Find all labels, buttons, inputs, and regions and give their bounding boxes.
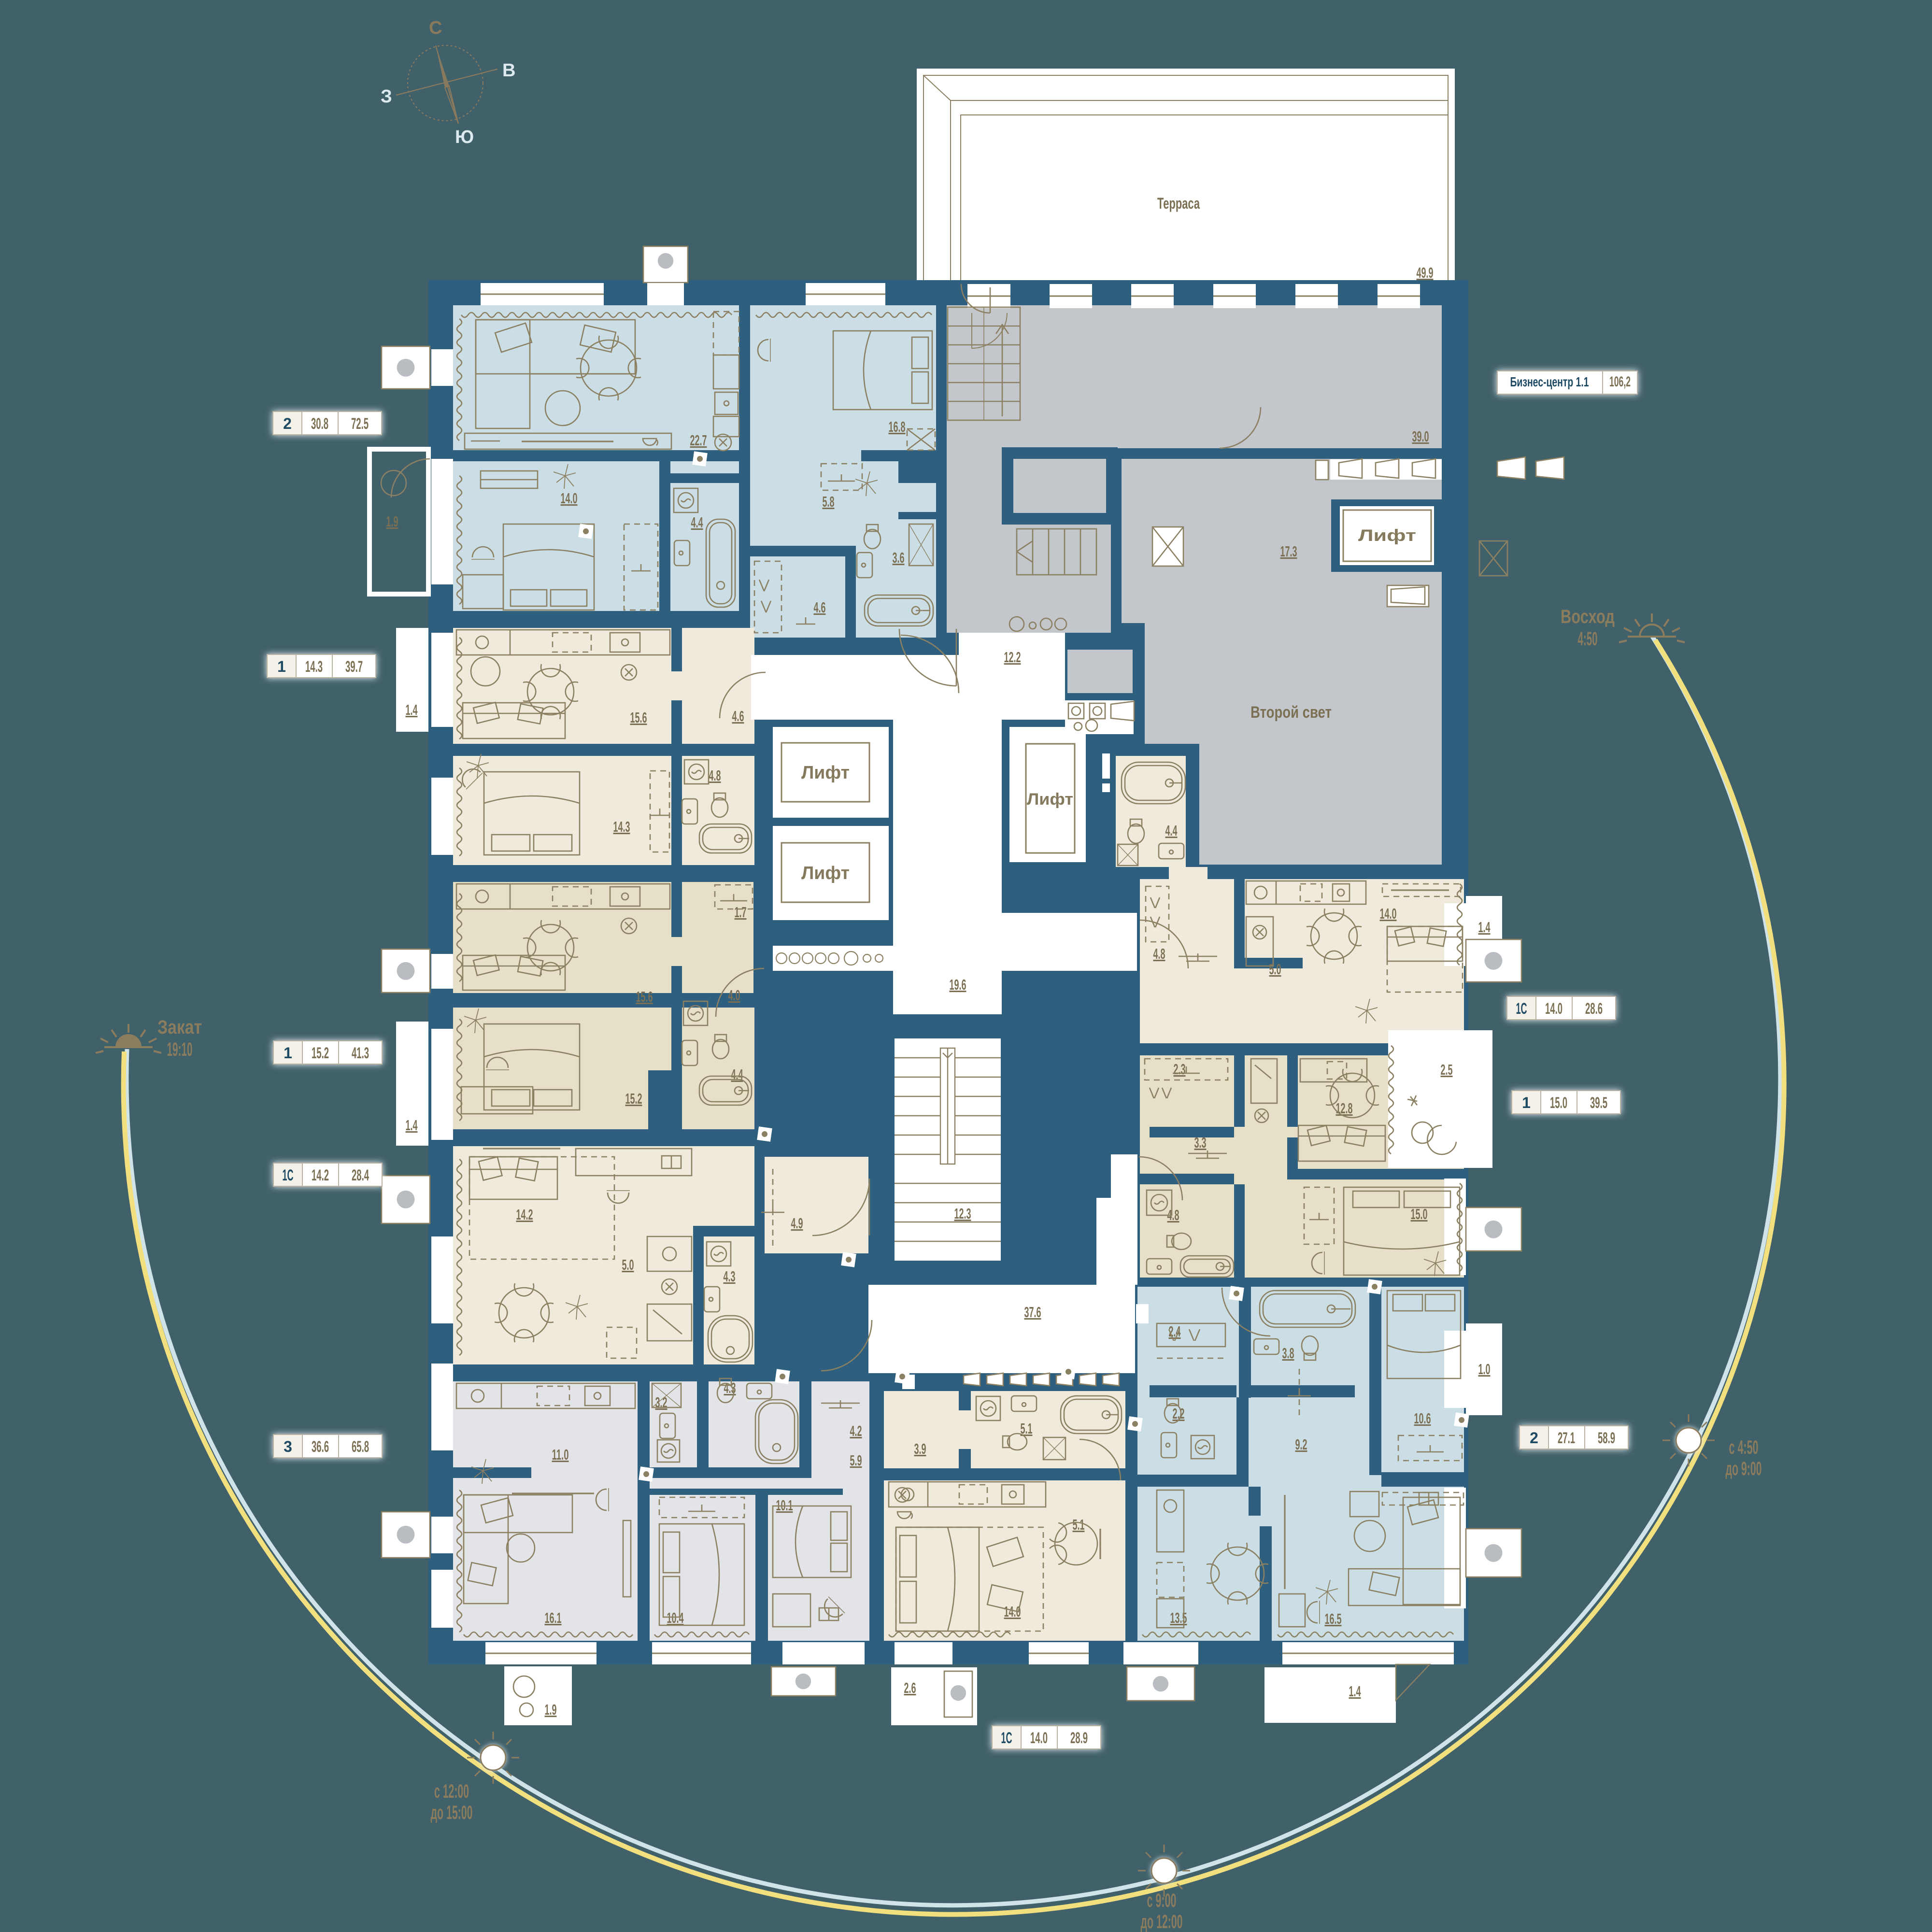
svg-text:1: 1 [284, 1044, 292, 1062]
svg-text:5.1: 5.1 [1073, 1516, 1085, 1533]
svg-text:16.8: 16.8 [889, 418, 906, 435]
svg-text:15.2: 15.2 [312, 1044, 329, 1062]
svg-text:с 4:50: с 4:50 [1729, 1437, 1759, 1458]
svg-text:1.7: 1.7 [735, 904, 747, 921]
svg-text:В: В [502, 60, 515, 81]
svg-text:16.5: 16.5 [1325, 1610, 1342, 1627]
svg-text:3.6: 3.6 [893, 549, 905, 566]
svg-text:14.0: 14.0 [1380, 905, 1397, 922]
svg-text:Лифт: Лифт [1358, 526, 1416, 545]
svg-text:28.6: 28.6 [1585, 1000, 1603, 1017]
svg-text:4.4: 4.4 [691, 514, 703, 531]
svg-text:с 12:00: с 12:00 [434, 1781, 469, 1802]
svg-text:Бизнес-центр 1.1: Бизнес-центр 1.1 [1510, 374, 1589, 389]
svg-text:4.2: 4.2 [850, 1422, 862, 1439]
svg-text:1.4: 1.4 [1478, 919, 1491, 936]
svg-text:12.2: 12.2 [1004, 649, 1021, 666]
svg-text:1С: 1С [1516, 1000, 1527, 1017]
svg-text:58.9: 58.9 [1598, 1429, 1615, 1447]
svg-text:49.9: 49.9 [1417, 264, 1434, 281]
svg-text:15.6: 15.6 [636, 988, 653, 1005]
svg-text:Лифт: Лифт [1027, 790, 1073, 809]
svg-text:22.7: 22.7 [690, 432, 707, 449]
svg-text:39.5: 39.5 [1590, 1094, 1607, 1111]
svg-text:4:50: 4:50 [1578, 628, 1598, 650]
svg-text:2.6: 2.6 [904, 1679, 916, 1696]
svg-text:4.0: 4.0 [728, 987, 740, 1004]
svg-text:72.5: 72.5 [351, 415, 369, 432]
svg-text:19:10: 19:10 [167, 1039, 193, 1060]
svg-text:1.4: 1.4 [1349, 1683, 1361, 1700]
svg-text:1: 1 [277, 658, 286, 675]
svg-text:4.6: 4.6 [732, 708, 744, 724]
svg-text:27.1: 27.1 [1558, 1429, 1575, 1447]
svg-text:3.3: 3.3 [1194, 1134, 1207, 1151]
svg-text:Восход: Восход [1561, 606, 1615, 627]
svg-text:4.8: 4.8 [1153, 945, 1165, 962]
svg-text:1.4: 1.4 [406, 701, 418, 718]
svg-text:11.0: 11.0 [552, 1446, 569, 1463]
svg-text:3: 3 [284, 1438, 292, 1455]
svg-text:41.3: 41.3 [352, 1044, 369, 1062]
svg-text:З: З [381, 86, 392, 107]
svg-text:28.9: 28.9 [1070, 1729, 1088, 1747]
svg-text:28.4: 28.4 [352, 1166, 369, 1184]
svg-text:4.4: 4.4 [1165, 822, 1178, 839]
svg-text:10.4: 10.4 [667, 1609, 684, 1626]
svg-text:2: 2 [283, 415, 292, 432]
svg-text:65.8: 65.8 [352, 1438, 369, 1455]
svg-text:15.0: 15.0 [1550, 1094, 1567, 1111]
svg-text:3.9: 3.9 [914, 1440, 926, 1457]
svg-text:1: 1 [1522, 1094, 1531, 1111]
svg-text:14.2: 14.2 [516, 1206, 533, 1223]
svg-text:Закат: Закат [157, 1017, 202, 1038]
svg-text:14.0: 14.0 [1030, 1729, 1048, 1747]
svg-text:Ю: Ю [455, 127, 474, 147]
svg-text:2.3: 2.3 [1174, 1061, 1186, 1078]
svg-text:10.6: 10.6 [1414, 1410, 1431, 1427]
svg-text:17.3: 17.3 [1280, 543, 1297, 560]
svg-text:2: 2 [1530, 1429, 1538, 1447]
svg-text:19.6: 19.6 [950, 976, 966, 993]
svg-text:1.9: 1.9 [386, 513, 398, 530]
svg-text:15.2: 15.2 [625, 1090, 642, 1107]
svg-text:14.3: 14.3 [613, 818, 630, 835]
svg-text:3.8: 3.8 [1282, 1345, 1294, 1362]
svg-text:12.8: 12.8 [1336, 1100, 1353, 1117]
svg-text:Лифт: Лифт [801, 763, 850, 783]
svg-text:37.6: 37.6 [1024, 1304, 1041, 1321]
svg-text:14.3: 14.3 [305, 658, 323, 675]
svg-text:до 15:00: до 15:00 [431, 1802, 473, 1823]
svg-text:до 12:00: до 12:00 [1141, 1911, 1183, 1932]
svg-text:1.4: 1.4 [406, 1117, 418, 1134]
svg-text:36.6: 36.6 [312, 1438, 329, 1455]
svg-text:С: С [429, 18, 442, 38]
svg-text:14.0: 14.0 [1545, 1000, 1563, 1017]
svg-text:с 9:00: с 9:00 [1147, 1890, 1177, 1911]
svg-text:39.0: 39.0 [1412, 428, 1429, 445]
svg-text:16.1: 16.1 [545, 1609, 562, 1626]
svg-text:1.0: 1.0 [1478, 1361, 1491, 1378]
svg-text:Терраса: Терраса [1157, 195, 1200, 212]
svg-text:до 9:00: до 9:00 [1726, 1458, 1762, 1479]
svg-text:Второй свет: Второй свет [1250, 703, 1332, 722]
svg-text:2.5: 2.5 [1441, 1061, 1453, 1078]
svg-text:30.8: 30.8 [311, 415, 328, 432]
svg-text:39.7: 39.7 [345, 658, 363, 675]
svg-text:5.9: 5.9 [850, 1452, 862, 1469]
svg-text:4.9: 4.9 [791, 1215, 803, 1232]
svg-text:10.1: 10.1 [776, 1497, 793, 1514]
svg-text:1С: 1С [1001, 1729, 1012, 1747]
svg-text:106,2: 106,2 [1609, 374, 1631, 390]
svg-text:4.6: 4.6 [814, 599, 826, 616]
svg-text:4.3: 4.3 [724, 1268, 736, 1285]
svg-text:9.2: 9.2 [1295, 1436, 1307, 1453]
svg-text:14.0: 14.0 [561, 490, 578, 507]
svg-text:Лифт: Лифт [801, 863, 850, 883]
svg-text:5.8: 5.8 [823, 493, 835, 510]
svg-text:15.6: 15.6 [630, 709, 647, 726]
svg-text:5.0: 5.0 [1269, 961, 1281, 978]
svg-text:4.8: 4.8 [709, 767, 721, 784]
svg-text:5.0: 5.0 [622, 1256, 634, 1273]
svg-text:1С: 1С [283, 1166, 294, 1184]
svg-text:1.9: 1.9 [545, 1701, 557, 1718]
svg-text:12.3: 12.3 [954, 1205, 971, 1222]
svg-text:14.2: 14.2 [312, 1166, 329, 1184]
